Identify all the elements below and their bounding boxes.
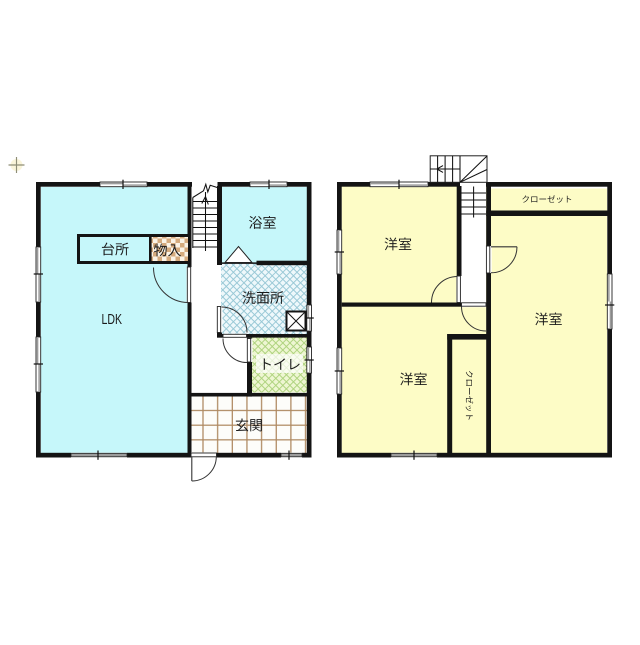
svg-text:LDK: LDK: [102, 312, 123, 328]
